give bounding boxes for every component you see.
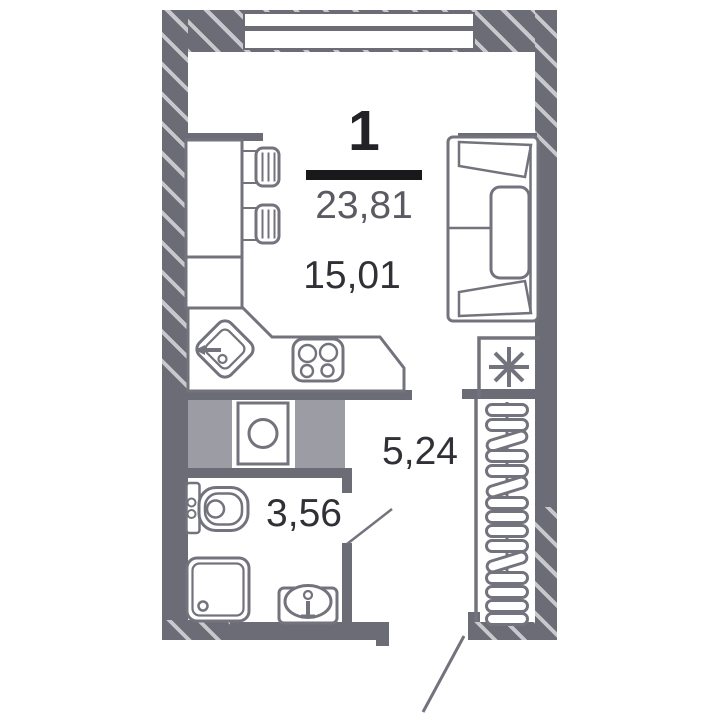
area-divider (306, 170, 422, 180)
bathroom-area-label: 3,56 (266, 492, 342, 536)
floor-plan: 1 23,81 15,01 5,24 3,56 (0, 0, 720, 720)
toilet-icon (187, 483, 249, 533)
shower-icon (187, 558, 249, 621)
chair-icon-top (242, 148, 279, 186)
living-area-label: 15,01 (303, 254, 401, 298)
total-area-label: 23,81 (315, 184, 413, 228)
washbasin-icon (279, 586, 337, 624)
washing-machine-icon (238, 403, 288, 464)
rooms-count-label: 1 (348, 98, 380, 164)
entrance-door-swing-icon (423, 636, 464, 712)
stove-icon (293, 339, 343, 381)
bathroom-door-swing-icon (347, 509, 392, 544)
chair-icon-bottom (242, 205, 279, 243)
wardrobe-icon (476, 399, 528, 625)
hallway-area-label: 5,24 (382, 430, 458, 474)
fridge-icon (479, 338, 540, 398)
sofa-icon (448, 137, 538, 321)
dining-table-icon (186, 140, 242, 308)
